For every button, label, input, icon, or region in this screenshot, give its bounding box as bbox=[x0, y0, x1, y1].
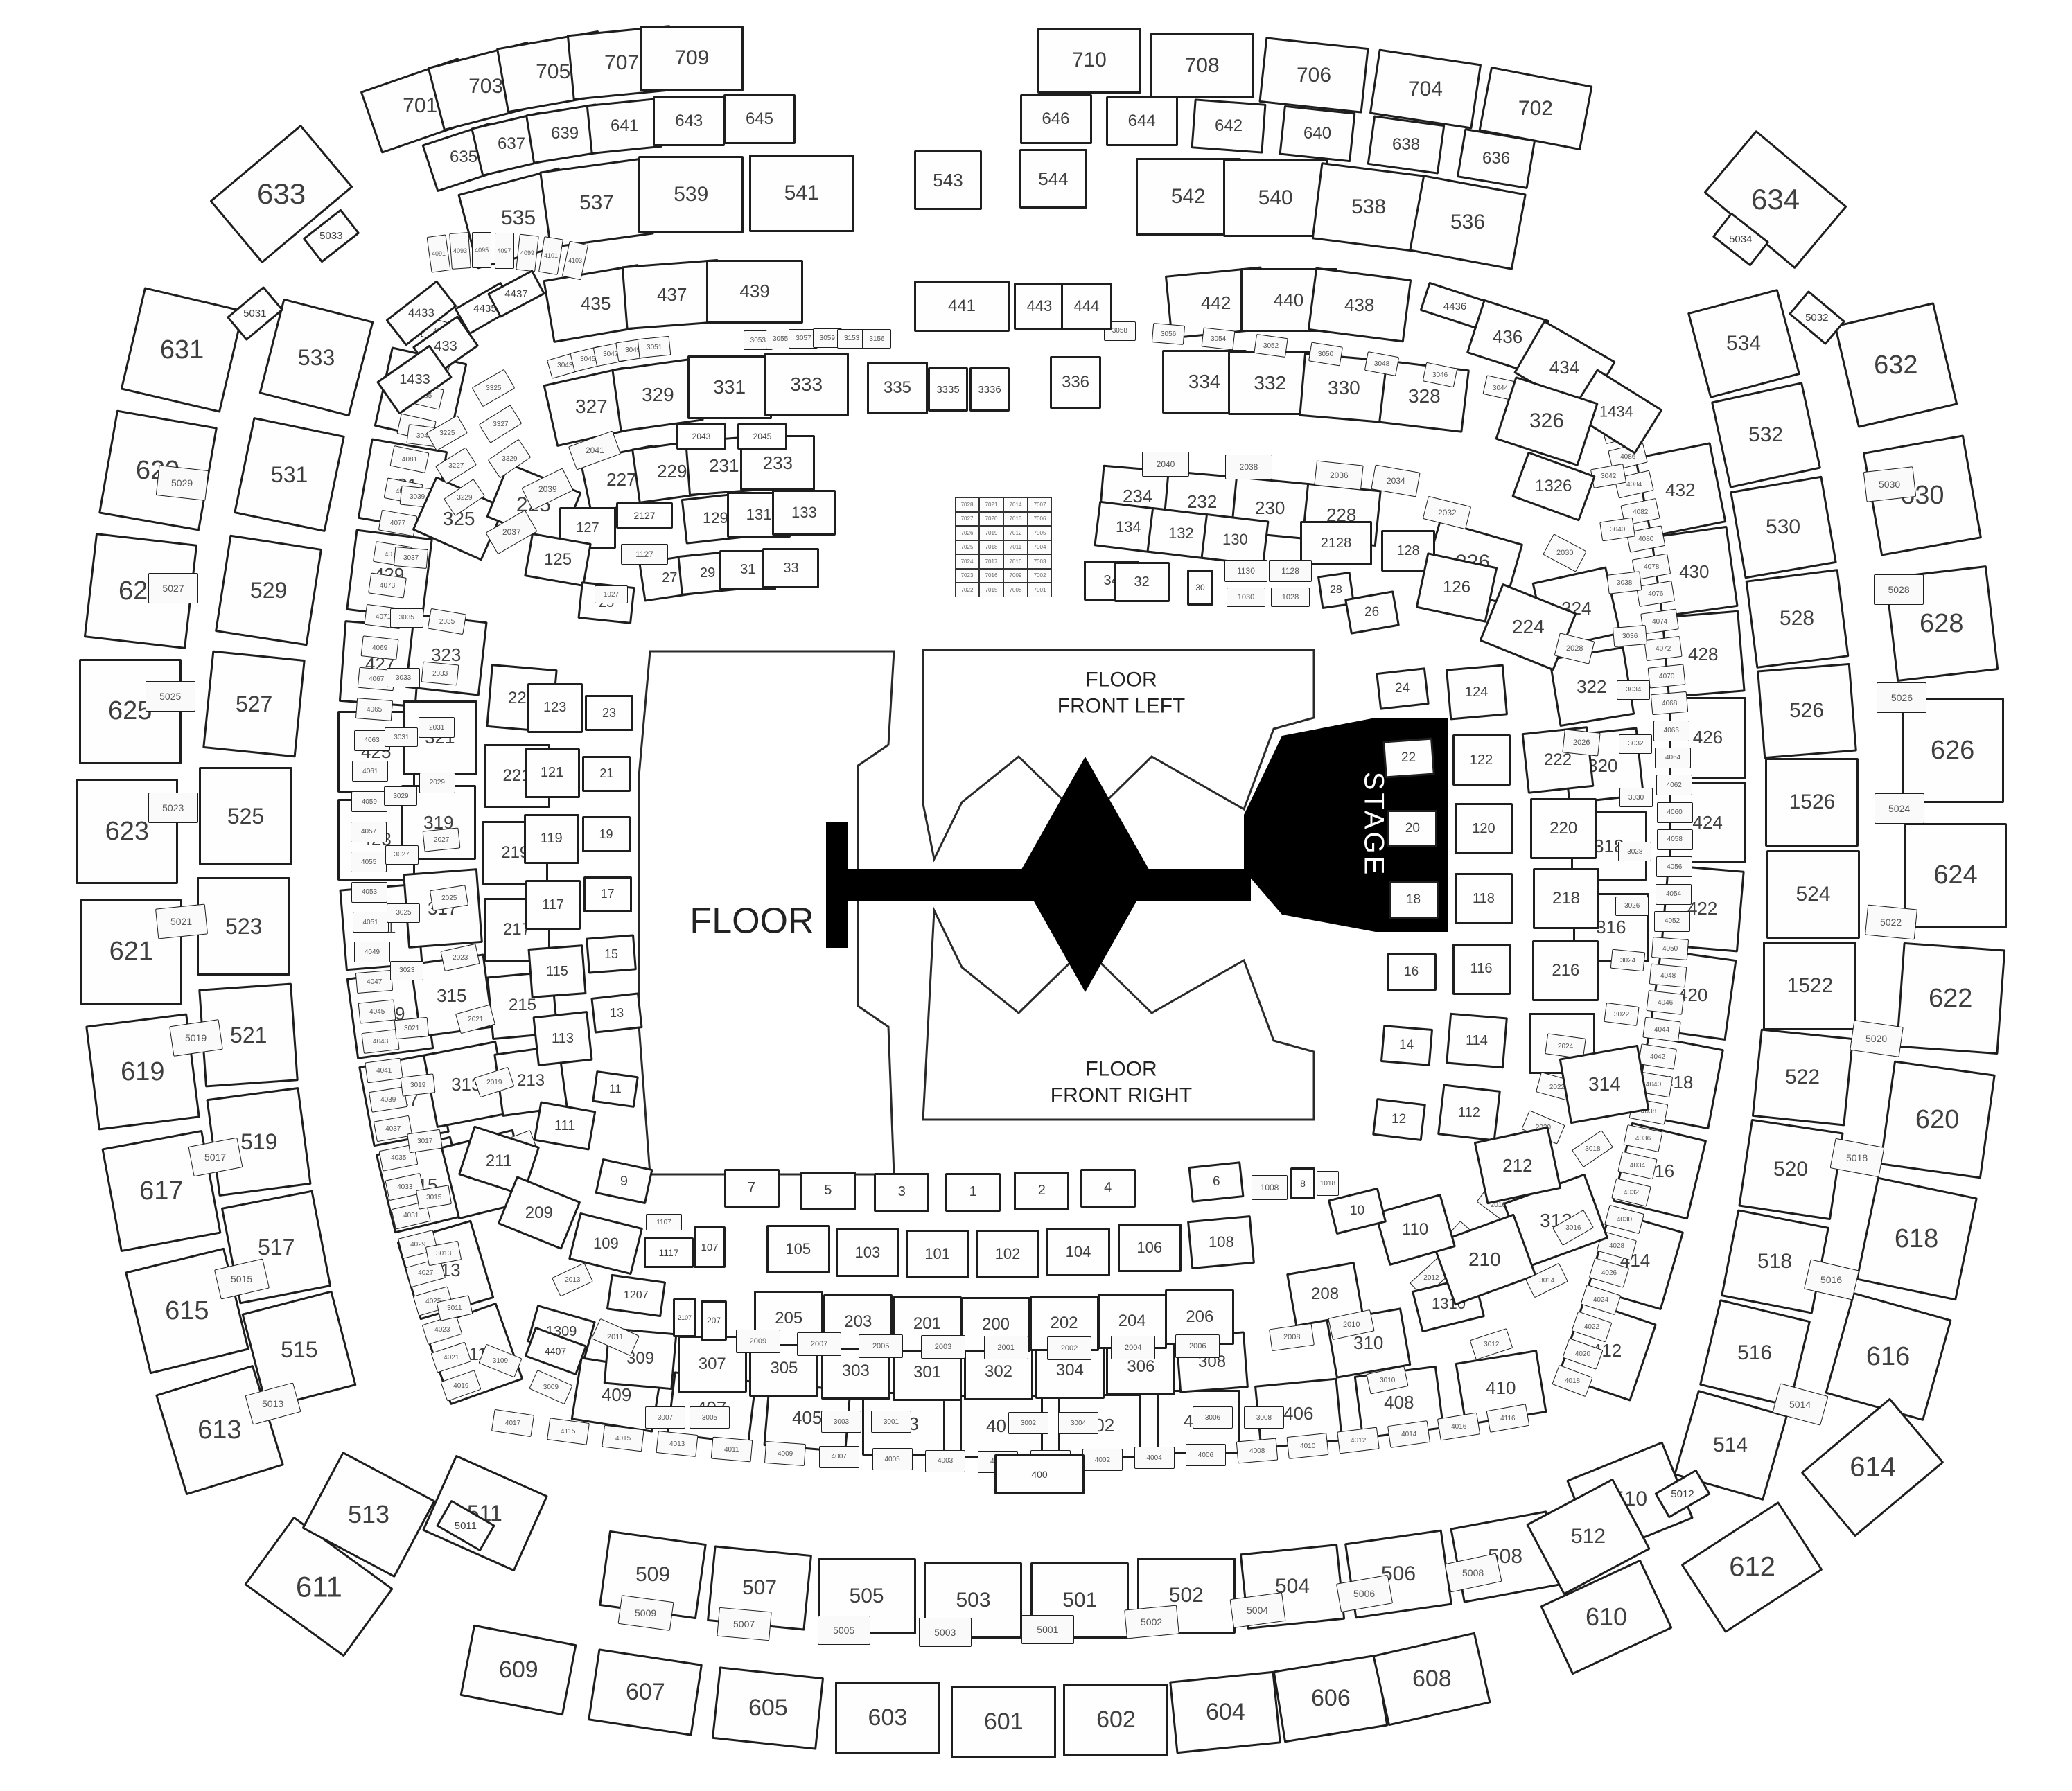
section-7007[interactable]: 7007 bbox=[1028, 497, 1052, 512]
floor-label[interactable]: FLOOR bbox=[690, 899, 814, 944]
section-3336[interactable]: 3336 bbox=[969, 367, 1010, 412]
section-2031[interactable]: 2031 bbox=[419, 717, 455, 738]
section-602[interactable]: 602 bbox=[1063, 1684, 1168, 1756]
section-4115[interactable]: 4115 bbox=[547, 1418, 590, 1445]
section-7005[interactable]: 7005 bbox=[1028, 526, 1052, 540]
section-label: 3014 bbox=[1539, 1277, 1554, 1285]
section-3028[interactable]: 3028 bbox=[1618, 842, 1651, 861]
section-7004[interactable]: 7004 bbox=[1028, 540, 1052, 555]
section-601[interactable]: 601 bbox=[951, 1686, 1056, 1758]
section-604[interactable]: 604 bbox=[1169, 1671, 1281, 1754]
section-543[interactable]: 543 bbox=[914, 150, 982, 210]
section-534[interactable]: 534 bbox=[1687, 289, 1800, 398]
section-11[interactable]: 11 bbox=[592, 1070, 639, 1108]
section-2009[interactable]: 2009 bbox=[736, 1330, 780, 1353]
section-18[interactable]: 18 bbox=[1389, 881, 1439, 919]
section-3007[interactable]: 3007 bbox=[645, 1406, 685, 1429]
section-631[interactable]: 631 bbox=[121, 287, 245, 413]
section-label: 4067 bbox=[369, 675, 384, 682]
section-16[interactable]: 16 bbox=[1387, 953, 1437, 991]
floor-front-left-label[interactable]: FLOOR FRONT LEFT bbox=[1057, 667, 1185, 719]
section-125[interactable]: 125 bbox=[524, 533, 592, 587]
section-522[interactable]: 522 bbox=[1752, 1029, 1854, 1127]
section-4060[interactable]: 4060 bbox=[1657, 802, 1693, 823]
section-2032[interactable]: 2032 bbox=[1423, 496, 1471, 529]
section-19[interactable]: 19 bbox=[582, 816, 631, 852]
section-4012[interactable]: 4012 bbox=[1337, 1427, 1379, 1454]
section-532[interactable]: 532 bbox=[1711, 382, 1821, 489]
section-444[interactable]: 444 bbox=[1061, 283, 1112, 330]
section-7027[interactable]: 7027 bbox=[955, 512, 979, 527]
section-4048[interactable]: 4048 bbox=[1649, 964, 1687, 988]
floor-front-right-label[interactable]: FLOOR FRONT RIGHT bbox=[1051, 1057, 1192, 1109]
section-1127[interactable]: 1127 bbox=[621, 544, 668, 565]
section-4[interactable]: 4 bbox=[1080, 1169, 1136, 1208]
section-4070[interactable]: 4070 bbox=[1648, 664, 1686, 688]
section-3[interactable]: 3 bbox=[874, 1173, 929, 1212]
section-1207[interactable]: 1207 bbox=[606, 1274, 666, 1318]
section-7003[interactable]: 7003 bbox=[1028, 554, 1052, 569]
section-3027[interactable]: 3027 bbox=[385, 845, 419, 865]
section-2043[interactable]: 2043 bbox=[676, 423, 726, 450]
section-117[interactable]: 117 bbox=[525, 880, 581, 930]
section-4057[interactable]: 4057 bbox=[351, 822, 387, 842]
section-4011[interactable]: 4011 bbox=[710, 1436, 753, 1462]
section-612[interactable]: 612 bbox=[1680, 1501, 1823, 1633]
section-1028[interactable]: 1028 bbox=[1271, 588, 1310, 607]
section-33[interactable]: 33 bbox=[762, 548, 819, 588]
section-label: 3048 bbox=[1374, 360, 1389, 367]
section-7008[interactable]: 7008 bbox=[1003, 583, 1028, 597]
section-520[interactable]: 520 bbox=[1738, 1119, 1843, 1221]
section-4054[interactable]: 4054 bbox=[1656, 884, 1692, 905]
section-4437[interactable]: 4437 bbox=[487, 270, 545, 318]
section-1027[interactable]: 1027 bbox=[595, 585, 628, 603]
section-531[interactable]: 531 bbox=[234, 417, 345, 532]
section-4052[interactable]: 4052 bbox=[1654, 911, 1690, 932]
section-7010[interactable]: 7010 bbox=[1003, 554, 1028, 569]
section-26[interactable]: 26 bbox=[1344, 590, 1400, 635]
section-527[interactable]: 527 bbox=[202, 651, 306, 758]
section-2030[interactable]: 2030 bbox=[1543, 533, 1587, 572]
section-641[interactable]: 641 bbox=[586, 98, 662, 155]
section-2045[interactable]: 2045 bbox=[737, 423, 787, 450]
section-115[interactable]: 115 bbox=[527, 944, 586, 998]
section-label: 33 bbox=[783, 561, 798, 576]
section-3031[interactable]: 3031 bbox=[385, 727, 418, 747]
section-539[interactable]: 539 bbox=[638, 156, 744, 233]
section-3024[interactable]: 3024 bbox=[1610, 949, 1645, 971]
section-632[interactable]: 632 bbox=[1834, 302, 1958, 428]
section-1117[interactable]: 1117 bbox=[644, 1237, 694, 1268]
section-22[interactable]: 22 bbox=[1382, 738, 1435, 779]
section-7016[interactable]: 7016 bbox=[979, 569, 1003, 583]
section-4066[interactable]: 4066 bbox=[1653, 721, 1689, 741]
section-525[interactable]: 525 bbox=[199, 767, 292, 865]
section-17[interactable]: 17 bbox=[583, 876, 632, 912]
section-336[interactable]: 336 bbox=[1050, 356, 1101, 409]
section-118[interactable]: 118 bbox=[1455, 873, 1513, 924]
section-5005[interactable]: 5005 bbox=[818, 1616, 870, 1645]
section-4059[interactable]: 4059 bbox=[351, 791, 387, 812]
section-3002[interactable]: 3002 bbox=[1008, 1412, 1048, 1434]
section-2013[interactable]: 2013 bbox=[552, 1262, 594, 1296]
section-3335[interactable]: 3335 bbox=[928, 367, 968, 412]
section-2004[interactable]: 2004 bbox=[1111, 1336, 1155, 1359]
section-4091[interactable]: 4091 bbox=[427, 234, 451, 272]
section-2005[interactable]: 2005 bbox=[859, 1334, 903, 1358]
section-438[interactable]: 438 bbox=[1307, 267, 1412, 343]
section-4055[interactable]: 4055 bbox=[351, 852, 387, 872]
section-7[interactable]: 7 bbox=[724, 1169, 780, 1208]
section-5009[interactable]: 5009 bbox=[618, 1595, 674, 1631]
section-21[interactable]: 21 bbox=[582, 756, 631, 792]
section-4007[interactable]: 4007 bbox=[819, 1446, 859, 1468]
section-7021[interactable]: 7021 bbox=[979, 497, 1003, 512]
section-3036[interactable]: 3036 bbox=[1613, 625, 1647, 647]
section-111[interactable]: 111 bbox=[534, 1101, 597, 1150]
section-706[interactable]: 706 bbox=[1259, 37, 1369, 113]
section-7006[interactable]: 7006 bbox=[1028, 512, 1052, 527]
section-2127[interactable]: 2127 bbox=[616, 502, 673, 529]
section-4095[interactable]: 4095 bbox=[472, 232, 491, 268]
section-710[interactable]: 710 bbox=[1037, 28, 1141, 94]
section-4047[interactable]: 4047 bbox=[355, 970, 393, 994]
section-2036[interactable]: 2036 bbox=[1314, 461, 1363, 491]
section-439[interactable]: 439 bbox=[706, 260, 803, 324]
section-4051[interactable]: 4051 bbox=[353, 912, 389, 933]
section-528[interactable]: 528 bbox=[1746, 569, 1850, 669]
section-5028[interactable]: 5028 bbox=[1874, 574, 1924, 605]
section-4003[interactable]: 4003 bbox=[925, 1450, 965, 1472]
section-2002[interactable]: 2002 bbox=[1047, 1336, 1091, 1360]
section-3325[interactable]: 3325 bbox=[472, 369, 516, 407]
section-12[interactable]: 12 bbox=[1372, 1098, 1426, 1141]
section-23[interactable]: 23 bbox=[585, 695, 633, 731]
section-638[interactable]: 638 bbox=[1367, 115, 1446, 174]
section-9[interactable]: 9 bbox=[595, 1158, 653, 1204]
section-32[interactable]: 32 bbox=[1114, 562, 1170, 602]
section-5022[interactable]: 5022 bbox=[1865, 904, 1917, 939]
section-4005[interactable]: 4005 bbox=[872, 1448, 913, 1470]
section-7022[interactable]: 7022 bbox=[955, 583, 979, 597]
section-2001[interactable]: 2001 bbox=[984, 1336, 1028, 1359]
section-7023[interactable]: 7023 bbox=[955, 569, 979, 583]
section-5[interactable]: 5 bbox=[800, 1172, 856, 1210]
section-5001[interactable]: 5001 bbox=[1021, 1615, 1074, 1644]
section-3001[interactable]: 3001 bbox=[871, 1411, 911, 1433]
section-1018[interactable]: 1018 bbox=[1317, 1171, 1339, 1196]
section-4069[interactable]: 4069 bbox=[360, 635, 398, 660]
section-4004[interactable]: 4004 bbox=[1134, 1447, 1175, 1469]
section-646[interactable]: 646 bbox=[1020, 94, 1092, 144]
section-122[interactable]: 122 bbox=[1452, 734, 1511, 786]
section-7026[interactable]: 7026 bbox=[955, 526, 979, 540]
section-7014[interactable]: 7014 bbox=[1003, 497, 1028, 512]
section-106[interactable]: 106 bbox=[1118, 1224, 1182, 1272]
section-7017[interactable]: 7017 bbox=[979, 554, 1003, 569]
section-216[interactable]: 216 bbox=[1532, 940, 1599, 1001]
section-3051[interactable]: 3051 bbox=[638, 336, 671, 359]
section-537[interactable]: 537 bbox=[539, 157, 654, 249]
section-708[interactable]: 708 bbox=[1150, 33, 1254, 98]
section-609[interactable]: 609 bbox=[460, 1625, 577, 1716]
section-7011[interactable]: 7011 bbox=[1003, 540, 1028, 555]
section-14[interactable]: 14 bbox=[1380, 1025, 1433, 1066]
section-123[interactable]: 123 bbox=[527, 683, 583, 733]
section-108[interactable]: 108 bbox=[1187, 1215, 1255, 1269]
section-5030[interactable]: 5030 bbox=[1863, 467, 1916, 503]
section-709[interactable]: 709 bbox=[640, 26, 744, 91]
section-4062[interactable]: 4062 bbox=[1656, 775, 1692, 795]
section-label: 4026 bbox=[1601, 1269, 1617, 1277]
section-1326[interactable]: 1326 bbox=[1511, 451, 1596, 521]
section-30[interactable]: 30 bbox=[1187, 570, 1213, 606]
section-1522[interactable]: 1522 bbox=[1763, 942, 1856, 1030]
section-5007[interactable]: 5007 bbox=[717, 1607, 771, 1641]
section-640[interactable]: 640 bbox=[1279, 105, 1355, 162]
section-314[interactable]: 314 bbox=[1559, 1045, 1650, 1124]
section-511[interactable]: 511 bbox=[422, 1454, 548, 1571]
section-7012[interactable]: 7012 bbox=[1003, 526, 1028, 540]
section-544[interactable]: 544 bbox=[1019, 149, 1087, 209]
section-2038[interactable]: 2038 bbox=[1225, 455, 1272, 479]
section-2033[interactable]: 2033 bbox=[421, 662, 459, 686]
section-7013[interactable]: 7013 bbox=[1003, 512, 1028, 527]
section-4002[interactable]: 4002 bbox=[1082, 1449, 1123, 1471]
section-218[interactable]: 218 bbox=[1533, 868, 1599, 929]
section-3156[interactable]: 3156 bbox=[862, 329, 891, 349]
section-3018[interactable]: 3018 bbox=[1572, 1130, 1613, 1167]
section-3054[interactable]: 3054 bbox=[1202, 328, 1236, 351]
section-7025[interactable]: 7025 bbox=[955, 540, 979, 555]
section-4009[interactable]: 4009 bbox=[764, 1441, 806, 1466]
section-1128[interactable]: 1128 bbox=[1269, 560, 1312, 582]
section-5003[interactable]: 5003 bbox=[919, 1618, 972, 1647]
section-15[interactable]: 15 bbox=[586, 934, 637, 973]
section-400[interactable]: 400 bbox=[994, 1454, 1085, 1494]
section-4068[interactable]: 4068 bbox=[1651, 691, 1688, 715]
section-331[interactable]: 331 bbox=[687, 355, 772, 419]
section-536[interactable]: 536 bbox=[1409, 175, 1527, 270]
section-label: 107 bbox=[701, 1242, 718, 1253]
section-634[interactable]: 634 bbox=[1703, 130, 1847, 270]
section-1526[interactable]: 1526 bbox=[1765, 758, 1859, 847]
section-5027[interactable]: 5027 bbox=[148, 573, 198, 603]
section-7015[interactable]: 7015 bbox=[979, 583, 1003, 597]
section-1[interactable]: 1 bbox=[945, 1173, 1001, 1212]
section-13[interactable]: 13 bbox=[590, 993, 642, 1034]
section-4056[interactable]: 4056 bbox=[1656, 856, 1692, 877]
section-133[interactable]: 133 bbox=[772, 490, 836, 536]
section-620[interactable]: 620 bbox=[1880, 1061, 1996, 1179]
section-5025[interactable]: 5025 bbox=[146, 681, 195, 712]
section-608[interactable]: 608 bbox=[1373, 1632, 1491, 1726]
section-644[interactable]: 644 bbox=[1106, 96, 1178, 146]
section-4016[interactable]: 4016 bbox=[1437, 1412, 1480, 1440]
section-121[interactable]: 121 bbox=[525, 748, 580, 798]
section-4053[interactable]: 4053 bbox=[351, 882, 387, 903]
section-3029[interactable]: 3029 bbox=[384, 786, 417, 806]
section-4049[interactable]: 4049 bbox=[354, 942, 390, 962]
section-4058[interactable]: 4058 bbox=[1657, 829, 1693, 850]
section-335[interactable]: 335 bbox=[867, 362, 928, 414]
section-3056[interactable]: 3056 bbox=[1152, 323, 1185, 345]
section-441[interactable]: 441 bbox=[914, 281, 1010, 332]
section-7018[interactable]: 7018 bbox=[979, 540, 1003, 555]
section-2128[interactable]: 2128 bbox=[1300, 521, 1372, 565]
section-119[interactable]: 119 bbox=[524, 814, 579, 864]
section-2040[interactable]: 2040 bbox=[1142, 452, 1189, 477]
section-529[interactable]: 529 bbox=[215, 535, 322, 646]
section-116[interactable]: 116 bbox=[1452, 944, 1511, 995]
section-114[interactable]: 114 bbox=[1446, 1012, 1508, 1068]
section-7028[interactable]: 7028 bbox=[955, 497, 979, 512]
section-523[interactable]: 523 bbox=[197, 877, 290, 976]
section-3003[interactable]: 3003 bbox=[821, 1411, 861, 1433]
section-606[interactable]: 606 bbox=[1272, 1655, 1388, 1743]
section-3025[interactable]: 3025 bbox=[387, 903, 420, 923]
section-2003[interactable]: 2003 bbox=[921, 1335, 965, 1359]
section-4050[interactable]: 4050 bbox=[1651, 937, 1689, 960]
section-102[interactable]: 102 bbox=[976, 1230, 1039, 1278]
section-3037[interactable]: 3037 bbox=[394, 547, 428, 569]
section-4093[interactable]: 4093 bbox=[449, 233, 471, 270]
section-622[interactable]: 622 bbox=[1896, 942, 2006, 1055]
section-603[interactable]: 603 bbox=[835, 1682, 940, 1754]
section-124[interactable]: 124 bbox=[1446, 664, 1508, 720]
section-220[interactable]: 220 bbox=[1530, 798, 1597, 859]
section-2006[interactable]: 2006 bbox=[1175, 1334, 1220, 1358]
section-4008[interactable]: 4008 bbox=[1236, 1438, 1278, 1464]
section-3034[interactable]: 3034 bbox=[1617, 680, 1650, 700]
section-5029[interactable]: 5029 bbox=[155, 465, 208, 501]
section-3030[interactable]: 3030 bbox=[1619, 788, 1653, 807]
section-107[interactable]: 107 bbox=[694, 1226, 726, 1268]
section-3035[interactable]: 3035 bbox=[390, 608, 423, 628]
section-2107[interactable]: 2107 bbox=[673, 1298, 696, 1337]
section-104[interactable]: 104 bbox=[1046, 1228, 1110, 1276]
section-4046[interactable]: 4046 bbox=[1646, 990, 1684, 1015]
section-103[interactable]: 103 bbox=[836, 1228, 899, 1277]
section-113[interactable]: 113 bbox=[533, 1011, 593, 1066]
section-3021[interactable]: 3021 bbox=[394, 1017, 429, 1039]
section-3006[interactable]: 3006 bbox=[1193, 1406, 1233, 1429]
section-3033[interactable]: 3033 bbox=[387, 668, 420, 687]
section-112[interactable]: 112 bbox=[1437, 1084, 1501, 1141]
section-3022[interactable]: 3022 bbox=[1604, 1003, 1639, 1026]
section-2029[interactable]: 2029 bbox=[419, 773, 455, 793]
section-524[interactable]: 524 bbox=[1766, 850, 1860, 939]
section-2007[interactable]: 2007 bbox=[797, 1332, 841, 1356]
section-1030[interactable]: 1030 bbox=[1227, 588, 1265, 607]
section-5026[interactable]: 5026 bbox=[1877, 682, 1926, 713]
section-618[interactable]: 618 bbox=[1856, 1177, 1978, 1301]
section-4017[interactable]: 4017 bbox=[491, 1409, 534, 1437]
section-3032[interactable]: 3032 bbox=[1619, 734, 1652, 754]
section-3327[interactable]: 3327 bbox=[479, 405, 523, 443]
section-3008[interactable]: 3008 bbox=[1244, 1406, 1284, 1429]
section-4006[interactable]: 4006 bbox=[1186, 1444, 1226, 1466]
section-label: 601 bbox=[984, 1709, 1024, 1736]
section-20[interactable]: 20 bbox=[1387, 810, 1437, 847]
section-541[interactable]: 541 bbox=[749, 155, 854, 232]
section-4099[interactable]: 4099 bbox=[516, 233, 538, 272]
section-643[interactable]: 643 bbox=[653, 96, 725, 146]
section-526[interactable]: 526 bbox=[1757, 662, 1857, 758]
section-105[interactable]: 105 bbox=[766, 1225, 830, 1273]
section-3052[interactable]: 3052 bbox=[1254, 334, 1288, 358]
section-1107[interactable]: 1107 bbox=[646, 1214, 682, 1230]
section-7009[interactable]: 7009 bbox=[1003, 569, 1028, 583]
section-443[interactable]: 443 bbox=[1014, 283, 1065, 330]
section-2027[interactable]: 2027 bbox=[422, 827, 460, 852]
section-label: 436 bbox=[1493, 326, 1522, 347]
section-538[interactable]: 538 bbox=[1312, 162, 1426, 252]
section-333[interactable]: 333 bbox=[764, 353, 849, 416]
section-7024[interactable]: 7024 bbox=[955, 554, 979, 569]
section-4015[interactable]: 4015 bbox=[602, 1424, 644, 1452]
section-642[interactable]: 642 bbox=[1191, 98, 1267, 153]
section-5024[interactable]: 5024 bbox=[1875, 793, 1924, 824]
section-4097[interactable]: 4097 bbox=[495, 233, 514, 269]
section-605[interactable]: 605 bbox=[712, 1666, 824, 1750]
section-7002[interactable]: 7002 bbox=[1028, 569, 1052, 583]
section-1008[interactable]: 1008 bbox=[1252, 1175, 1288, 1200]
section-5023[interactable]: 5023 bbox=[148, 793, 198, 823]
section-5002[interactable]: 5002 bbox=[1124, 1605, 1179, 1639]
section-2[interactable]: 2 bbox=[1014, 1172, 1069, 1210]
section-207[interactable]: 207 bbox=[701, 1300, 727, 1341]
section-4043[interactable]: 4043 bbox=[361, 1029, 399, 1054]
section-5021[interactable]: 5021 bbox=[155, 904, 208, 939]
section-3009[interactable]: 3009 bbox=[529, 1370, 572, 1404]
section-540[interactable]: 540 bbox=[1223, 159, 1328, 237]
section-2008[interactable]: 2008 bbox=[1269, 1323, 1315, 1351]
section-3023[interactable]: 3023 bbox=[390, 961, 423, 980]
section-1130[interactable]: 1130 bbox=[1224, 560, 1267, 582]
section-607[interactable]: 607 bbox=[588, 1648, 703, 1736]
section-4013[interactable]: 4013 bbox=[656, 1431, 699, 1458]
section-7019[interactable]: 7019 bbox=[979, 526, 1003, 540]
section-530[interactable]: 530 bbox=[1730, 475, 1838, 579]
section-24[interactable]: 24 bbox=[1376, 668, 1430, 711]
section-4045[interactable]: 4045 bbox=[358, 1000, 396, 1024]
section-101[interactable]: 101 bbox=[906, 1230, 969, 1278]
section-8[interactable]: 8 bbox=[1290, 1167, 1315, 1199]
section-3026[interactable]: 3026 bbox=[1615, 897, 1649, 916]
section-624[interactable]: 624 bbox=[1904, 823, 2007, 928]
section-645[interactable]: 645 bbox=[723, 94, 796, 144]
section-4061[interactable]: 4061 bbox=[352, 761, 388, 782]
section-7001[interactable]: 7001 bbox=[1028, 583, 1052, 597]
section-5020[interactable]: 5020 bbox=[1850, 1020, 1904, 1057]
section-4064[interactable]: 4064 bbox=[1655, 748, 1691, 768]
section-3004[interactable]: 3004 bbox=[1058, 1412, 1098, 1434]
section-3038[interactable]: 3038 bbox=[1607, 571, 1642, 594]
section-130[interactable]: 130 bbox=[1201, 513, 1270, 566]
section-4010[interactable]: 4010 bbox=[1287, 1433, 1329, 1460]
section-3005[interactable]: 3005 bbox=[690, 1406, 730, 1429]
section-6[interactable]: 6 bbox=[1188, 1161, 1244, 1203]
section-120[interactable]: 120 bbox=[1455, 803, 1513, 854]
section-7020[interactable]: 7020 bbox=[979, 512, 1003, 527]
section-label: 609 bbox=[499, 1657, 538, 1684]
section-3019[interactable]: 3019 bbox=[400, 1073, 435, 1096]
section-626[interactable]: 626 bbox=[1902, 698, 2004, 803]
section-2026[interactable]: 2026 bbox=[1562, 729, 1600, 756]
section-4065[interactable]: 4065 bbox=[355, 698, 392, 722]
